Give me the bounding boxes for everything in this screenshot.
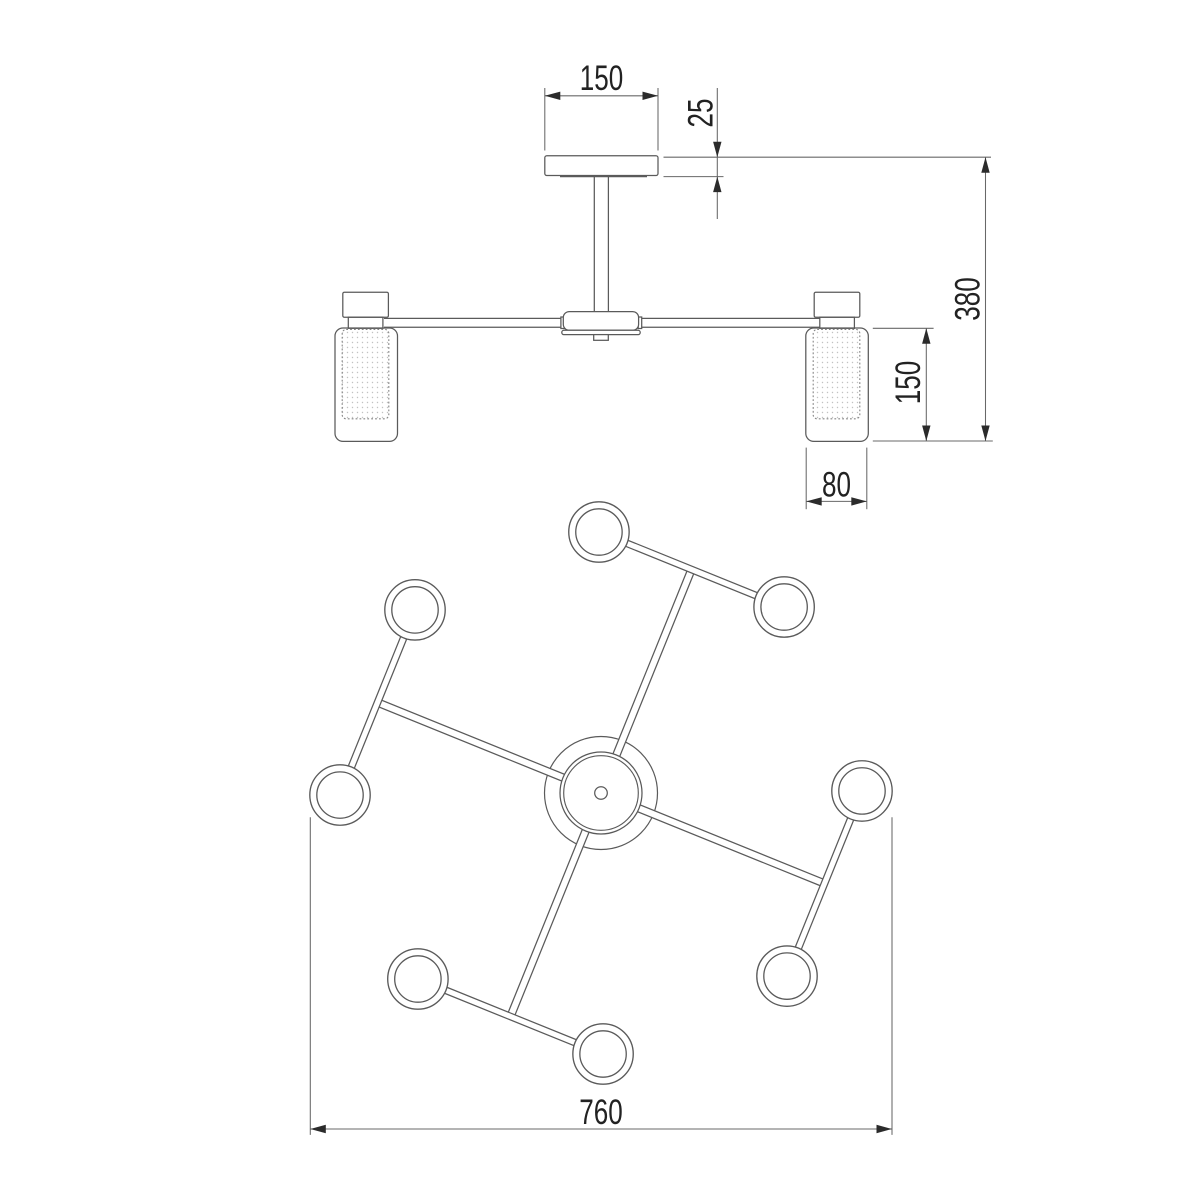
svg-text:80: 80 — [822, 466, 851, 505]
svg-text:150: 150 — [580, 59, 624, 98]
svg-text:150: 150 — [889, 361, 928, 405]
svg-text:760: 760 — [579, 1093, 623, 1132]
svg-text:25: 25 — [682, 99, 721, 128]
svg-text:380: 380 — [949, 277, 988, 321]
